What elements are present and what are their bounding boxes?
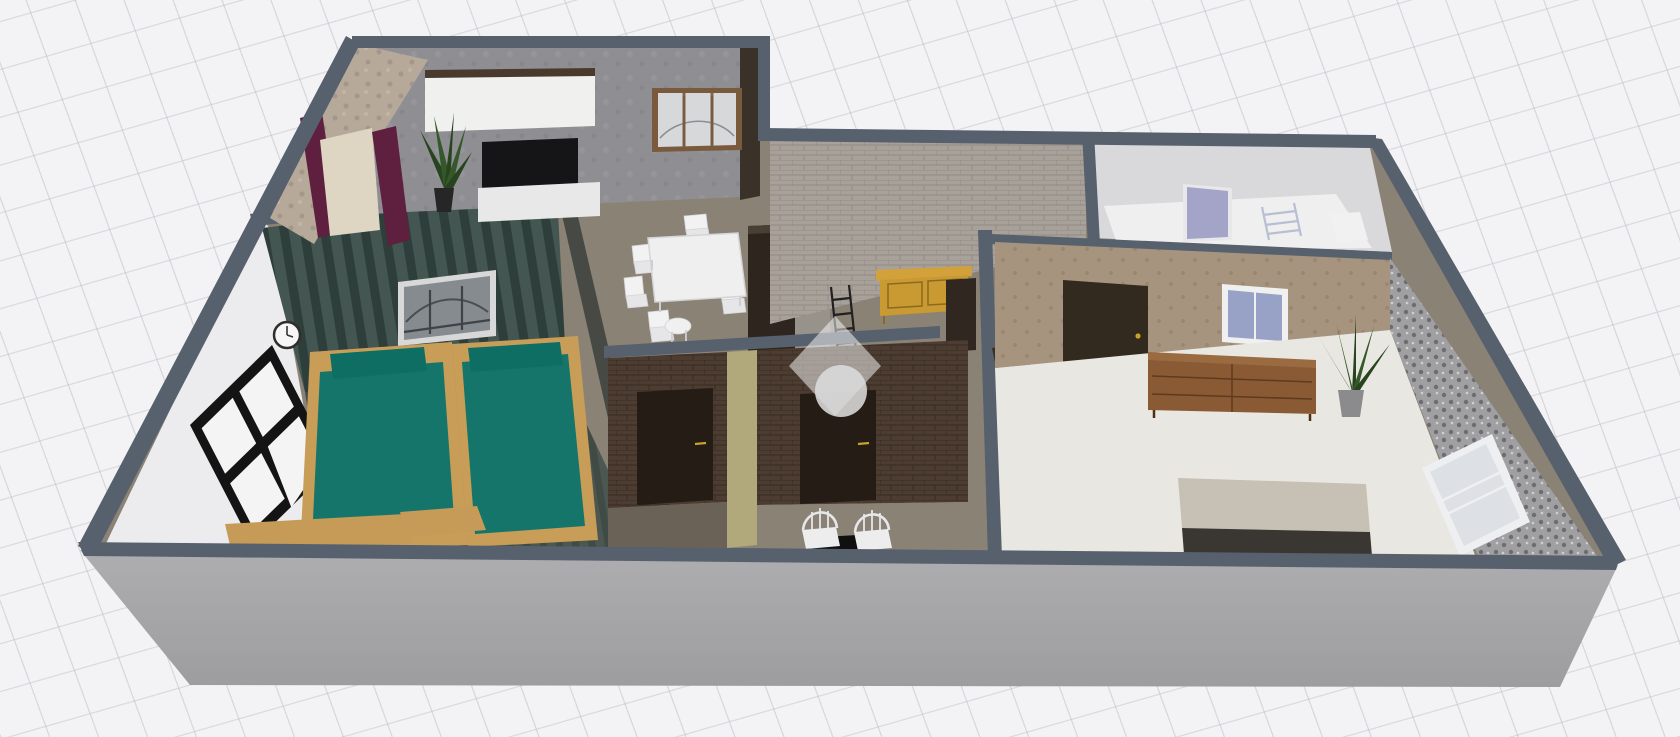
living-plant-pot <box>434 188 454 212</box>
wall-cabinet <box>425 68 595 132</box>
master-plant-pot <box>1338 390 1364 417</box>
bathroom-block <box>604 326 975 558</box>
curtains <box>300 112 410 246</box>
dining-table <box>648 233 746 302</box>
step-wall-plate <box>758 36 770 140</box>
floor-plan-svg <box>0 0 1680 737</box>
blue-window <box>1222 284 1288 347</box>
bridge-view-window <box>652 88 742 152</box>
front-cut-wall <box>80 550 1618 687</box>
wall-clock <box>274 322 300 348</box>
floor-plan-canvas <box>0 0 1680 737</box>
bridge-picture <box>398 270 496 346</box>
bath-left-floor <box>608 502 727 548</box>
north-wall-plate-living <box>352 36 770 48</box>
lilac-door <box>1183 184 1232 242</box>
divider-wall <box>727 350 757 548</box>
double-bed <box>1178 478 1372 556</box>
room-top-right-bathroom <box>1082 132 1392 252</box>
media-console <box>478 182 600 222</box>
bath-left-door <box>637 388 713 505</box>
tall-cabinet <box>740 48 760 200</box>
watermark-circle <box>815 365 867 417</box>
